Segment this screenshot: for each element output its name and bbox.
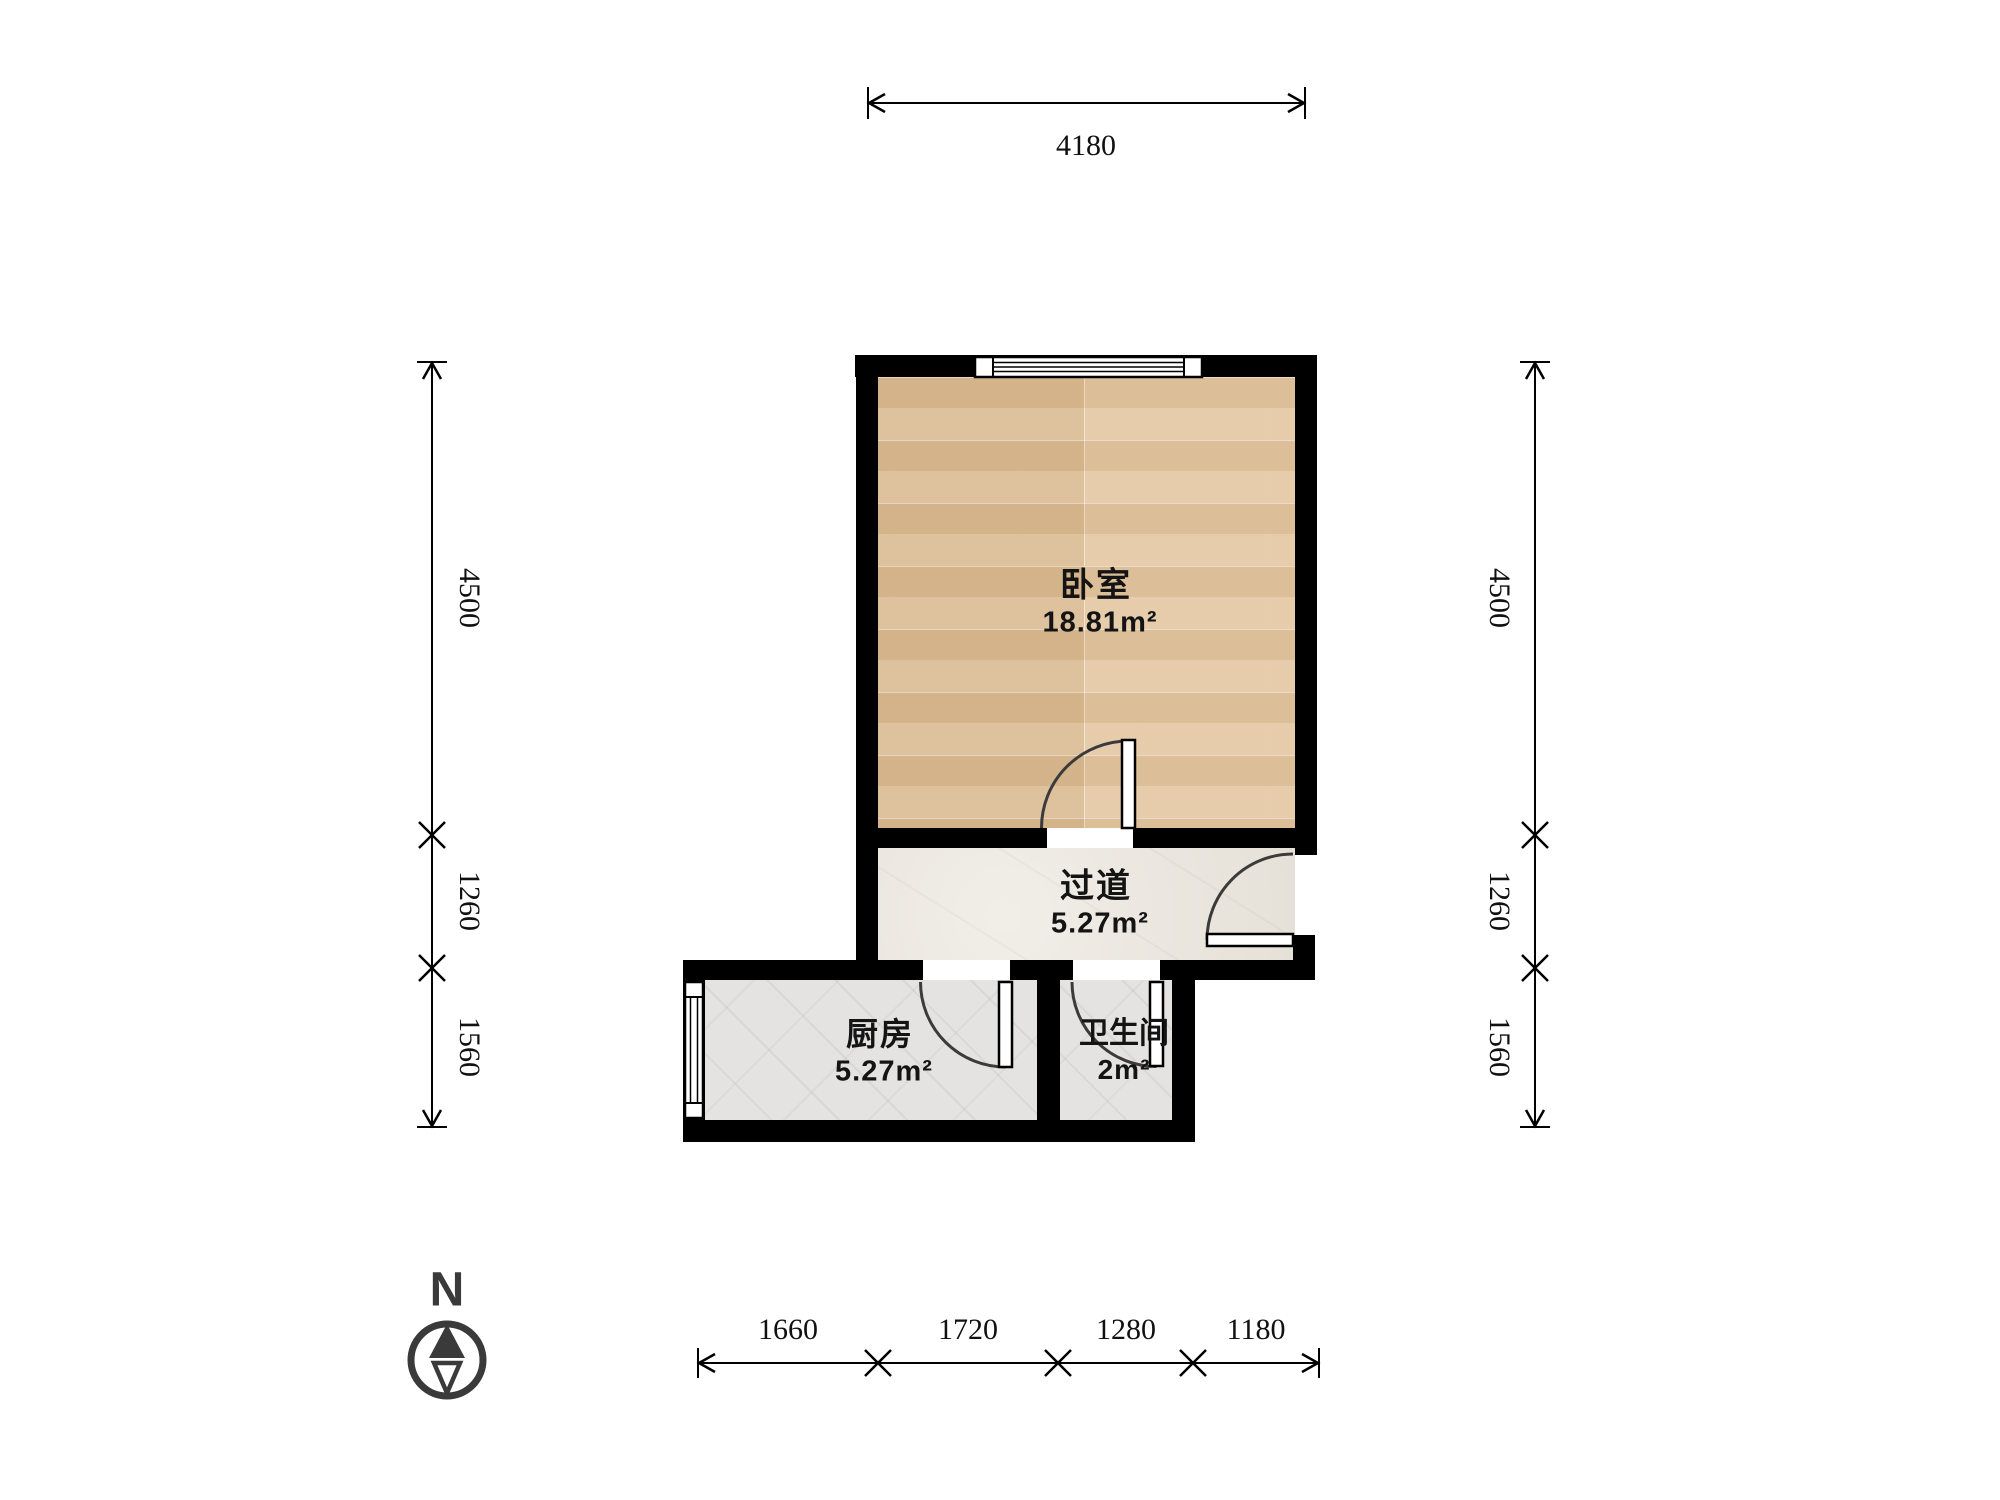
bedroom-window-icon xyxy=(975,357,1202,377)
hallway-label: 过道 xyxy=(1060,859,1132,908)
floor-plan: 卧室 18.81m² 过道 5.27m² 厨房 5.27m² 卫生间 2m² 4… xyxy=(0,0,2000,1500)
kitchen-label: 厨房 xyxy=(846,1009,914,1055)
dimension-line-bottom xyxy=(698,1348,1319,1378)
kitchen-area: 5.27m² xyxy=(835,1056,933,1089)
dimension-line-right xyxy=(1520,362,1550,1127)
north-label: N xyxy=(430,1263,465,1318)
dim-right-1560: 1560 xyxy=(1482,1017,1516,1077)
bedroom-door-icon xyxy=(1042,740,1136,828)
dim-right-4500: 4500 xyxy=(1482,568,1516,628)
bedroom-label: 卧室 xyxy=(1060,558,1132,607)
kitchen-door-icon xyxy=(921,982,1013,1067)
bathroom-label: 卫生间 xyxy=(1079,1008,1169,1052)
plan-linework xyxy=(0,0,2000,1500)
dim-bottom-1280: 1280 xyxy=(1096,1313,1156,1347)
bedroom-area: 18.81m² xyxy=(1042,607,1157,640)
dim-bottom-1660: 1660 xyxy=(758,1313,818,1347)
dimension-line-left xyxy=(417,362,447,1127)
dim-left-4500: 4500 xyxy=(452,568,486,628)
entry-door-icon xyxy=(1207,854,1293,946)
north-arrow-icon xyxy=(411,1324,483,1396)
dim-right-1260: 1260 xyxy=(1482,871,1516,931)
dimension-line-top xyxy=(868,87,1305,119)
kitchen-window-icon xyxy=(685,982,703,1118)
dim-top-4180: 4180 xyxy=(1056,129,1116,163)
bathroom-area: 2m² xyxy=(1098,1054,1151,1086)
dim-left-1560: 1560 xyxy=(452,1017,486,1077)
dim-bottom-1720: 1720 xyxy=(938,1313,998,1347)
hallway-area: 5.27m² xyxy=(1051,908,1149,941)
dim-left-1260: 1260 xyxy=(452,871,486,931)
dim-bottom-1180: 1180 xyxy=(1227,1313,1286,1347)
